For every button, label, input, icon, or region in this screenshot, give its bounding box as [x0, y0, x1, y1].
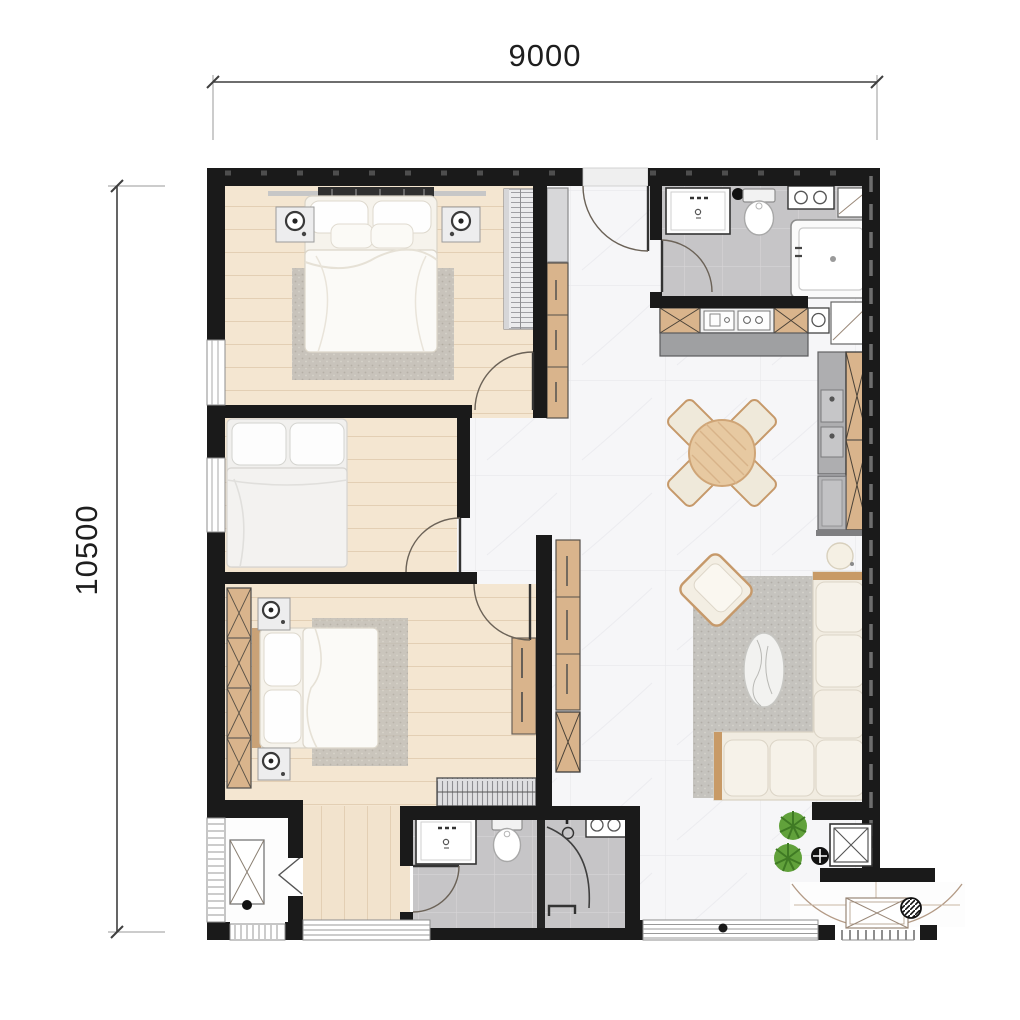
hatched-column [901, 898, 921, 918]
dimension-width-label: 9000 [509, 38, 582, 73]
toilet [492, 818, 522, 862]
vanity-sink [416, 818, 476, 864]
cabinet-base-line [816, 530, 870, 536]
bedroom2-window [207, 458, 225, 532]
striped-wardrobe [504, 189, 537, 329]
double-bed [227, 419, 347, 567]
counter-upper-cabinets [660, 308, 808, 333]
x-wardrobe [227, 588, 251, 788]
floor-drain [732, 188, 744, 200]
vestibule-floor [303, 806, 410, 922]
nightstand-right [442, 207, 480, 242]
hob-unit [738, 311, 770, 330]
oval-coffee-table [744, 633, 784, 707]
counter-front [660, 333, 808, 356]
floating-shelf-left [268, 191, 318, 196]
bathtub [791, 220, 871, 298]
x-doormat [846, 898, 908, 928]
dimension-height-label: 10500 [69, 504, 104, 595]
bedroom3-bottom-window [303, 920, 430, 940]
nightstand-left [276, 207, 314, 242]
bedroom-2 [227, 419, 347, 567]
shoe-cabinet [437, 778, 536, 806]
vanity-sink [666, 188, 730, 234]
washer-knob-box [788, 186, 834, 209]
bedroom1-window [207, 340, 225, 405]
living-bottom-window [643, 920, 818, 940]
round-knob-box [808, 308, 829, 333]
side-table [827, 543, 854, 569]
sink-unit [704, 311, 734, 330]
entry-door-threshold [583, 168, 648, 186]
dimension-left: 10500 [69, 180, 165, 938]
drain-dot [242, 900, 252, 910]
double-bed [252, 628, 378, 748]
shaft-box [830, 824, 872, 866]
ac-bottom-louver [230, 924, 285, 940]
dimension-top: 9000 [207, 38, 883, 140]
hose-valve [811, 847, 829, 865]
refrigerator [818, 476, 846, 530]
nightstand-top [258, 598, 290, 630]
wall-console [512, 638, 536, 734]
floating-shelf-right [434, 191, 486, 196]
round-dining-table [689, 420, 755, 486]
nightstand-bottom [258, 748, 290, 780]
tv-wood-console [556, 540, 580, 772]
toilet [743, 189, 775, 235]
hall-tall-cabinet [547, 188, 568, 418]
floor-plan-drawing: 9000 10500 [0, 0, 1020, 1020]
tall-counter [818, 352, 846, 474]
comb-threshold [842, 930, 914, 940]
floor-plan-page: 9000 10500 [0, 0, 1020, 1020]
left-louver [207, 818, 225, 922]
double-bed [305, 196, 437, 352]
